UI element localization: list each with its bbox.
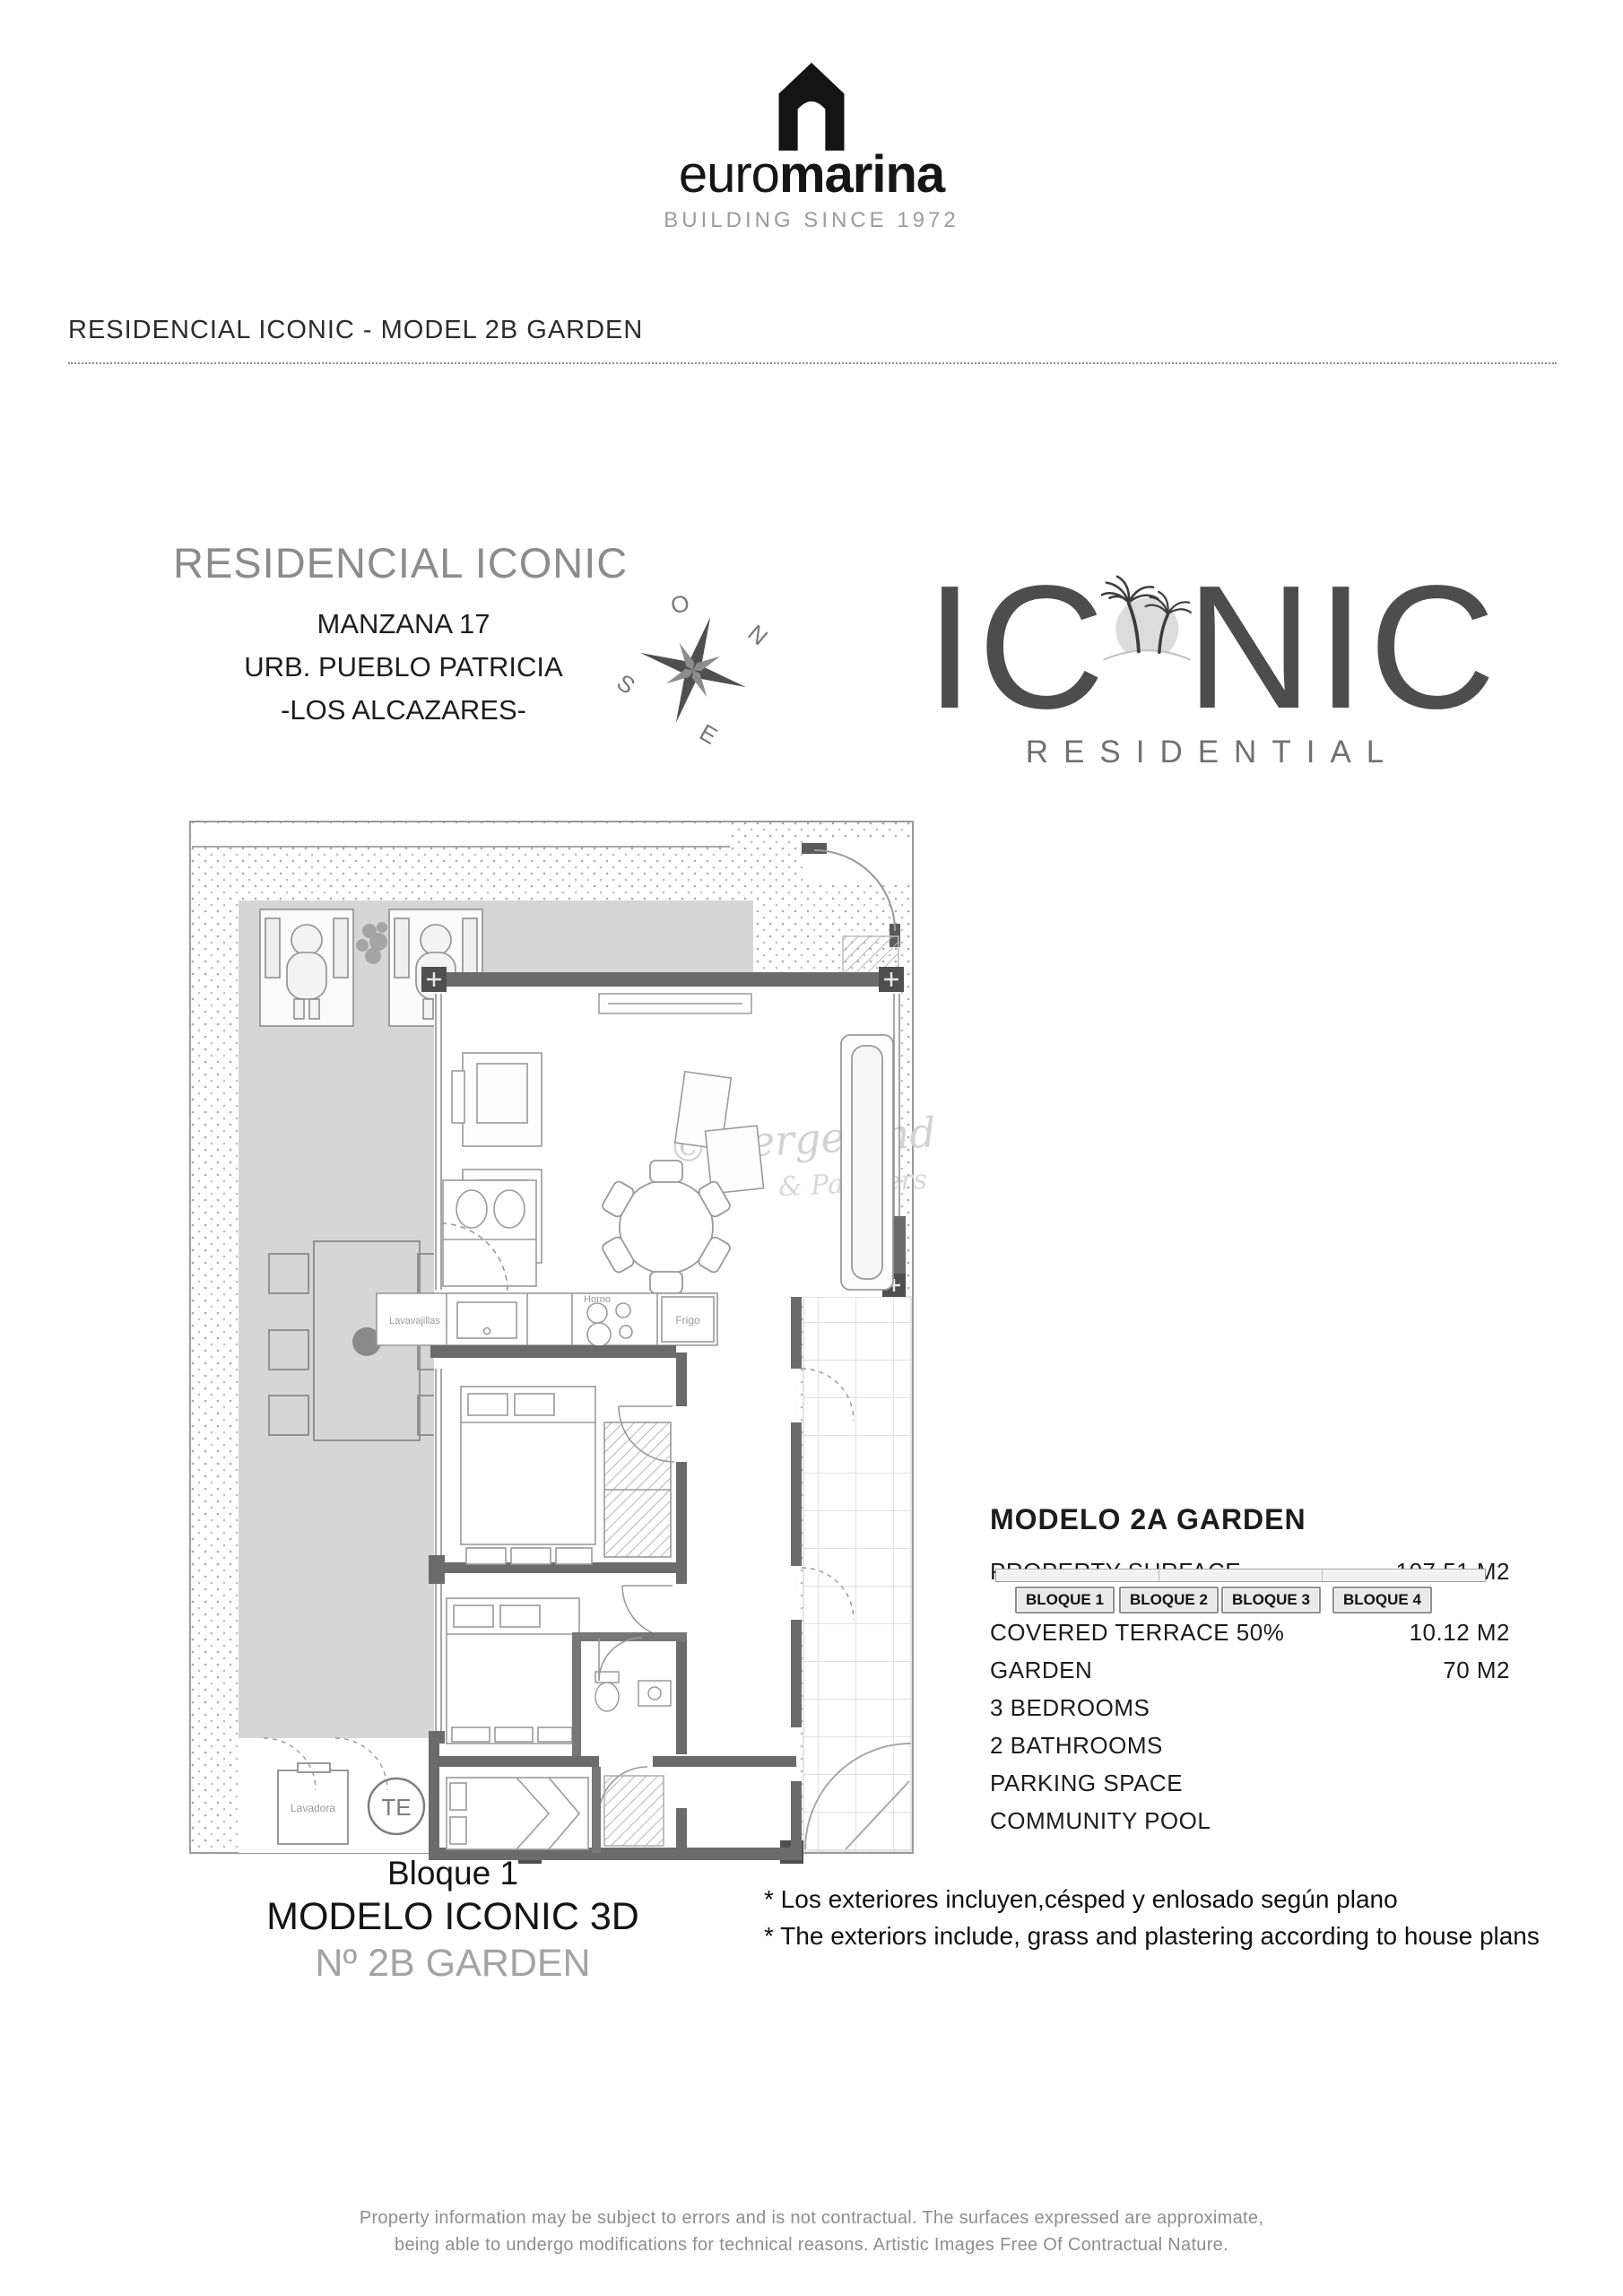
detail-row-bedrooms: 3 BEDROOMS	[990, 1696, 1510, 1719]
caption-bloque: Bloque 1	[215, 1855, 690, 1892]
viewer-slider[interactable]	[995, 1569, 1486, 1582]
armchair	[452, 1053, 542, 1146]
address-line-2: URB. PUEBLO PATRICIA	[170, 651, 637, 683]
detail-label: 3 BEDROOMS	[990, 1696, 1150, 1719]
sun-lounger	[260, 909, 353, 1026]
iconic-logo: IC	[925, 516, 1499, 770]
detail-row-parking: PARKING SPACE	[990, 1771, 1510, 1795]
compass-rose-icon: O N S E	[617, 585, 769, 751]
detail-row-property-surface: PROPERTY SURFACE 107.51 M2	[990, 1560, 1510, 1583]
detail-value: 10.12 M2	[1410, 1621, 1510, 1644]
brand-marina: marina	[779, 145, 944, 204]
footer-line-1: Property information may be subject to e…	[0, 2205, 1623, 2231]
detail-label: 2 BATHROOMS	[990, 1734, 1163, 1757]
detail-label: PARKING SPACE	[990, 1771, 1183, 1795]
brand-tagline: BUILDING SINCE 1972	[0, 208, 1623, 233]
legal-footer: Property information may be subject to e…	[0, 2205, 1623, 2258]
iconic-letters-right: NIC	[1185, 566, 1499, 729]
water-heater-label: TE	[381, 1794, 411, 1821]
bed	[447, 1598, 579, 1744]
brand-euro: euro	[679, 145, 779, 204]
bloque-button-row: BLOQUE 1 BLOQUE 2 BLOQUE 3 BLOQUE 4	[990, 1587, 1510, 1619]
bloque-4-button[interactable]: BLOQUE 4	[1332, 1587, 1432, 1613]
brand-wordmark: euromarina	[0, 149, 1623, 201]
brand-header: euromarina BUILDING SINCE 1972	[0, 54, 1623, 233]
bloque-1-button[interactable]: BLOQUE 1	[1015, 1587, 1115, 1613]
bed	[447, 1778, 588, 1849]
shower	[604, 1776, 664, 1846]
detail-label: COVERED TERRACE 50%	[990, 1621, 1284, 1644]
tv-console	[599, 994, 751, 1013]
sink-icon	[638, 1681, 671, 1706]
address-line-3: -LOS ALCAZARES-	[170, 694, 637, 726]
footnote-en: * The exteriors include, grass and plast…	[764, 1918, 1540, 1955]
fridge-label: Frigo	[675, 1314, 700, 1326]
compass-e-label: E	[695, 718, 722, 750]
compass-n-label: N	[742, 619, 769, 650]
bed	[461, 1387, 595, 1564]
caption-model: MODELO ICONIC 3D	[215, 1895, 690, 1939]
detail-row-bathrooms: 2 BATHROOMS	[990, 1734, 1510, 1757]
title-divider	[68, 362, 1557, 364]
bloque-2-button[interactable]: BLOQUE 2	[1119, 1587, 1219, 1613]
page-title: RESIDENCIAL ICONIC - MODEL 2B GARDEN	[68, 316, 643, 345]
caption-unit: Nº 2B GARDEN	[215, 1942, 690, 1986]
palm-sun-icon	[1101, 516, 1193, 729]
page: euromarina BUILDING SINCE 1972 RESIDENCI…	[0, 0, 1623, 2296]
floor-plan: © Wergeland & Partners	[178, 795, 962, 1864]
detail-label: GARDEN	[990, 1658, 1092, 1682]
kitchen-island	[443, 1180, 536, 1286]
footnotes: * Los exteriores incluyen,césped y enlos…	[764, 1882, 1540, 1954]
detail-value: 70 M2	[1443, 1658, 1510, 1682]
project-address: MANZANA 17 URB. PUEBLO PATRICIA -LOS ALC…	[170, 608, 637, 737]
sofa	[841, 1035, 893, 1290]
detail-row-garden: GARDEN 70 M2	[990, 1658, 1510, 1682]
compass-o-label: O	[668, 589, 692, 620]
address-line-1: MANZANA 17	[170, 608, 637, 640]
detail-row-pool: COMMUNITY POOL	[990, 1809, 1510, 1832]
house-icon	[768, 54, 855, 154]
washer-label: Lavadora	[291, 1802, 335, 1814]
detail-label: COMMUNITY POOL	[990, 1809, 1211, 1832]
details-panel: MODELO 2A GARDEN PROPERTY SURFACE 107.51…	[990, 1503, 1510, 1847]
dishwasher-label: Lavavajillas	[389, 1316, 440, 1326]
project-name: RESIDENCIAL ICONIC	[173, 538, 628, 587]
plan-caption: Bloque 1 MODELO ICONIC 3D Nº 2B GARDEN	[215, 1855, 690, 1986]
compass-s-label: S	[617, 668, 640, 700]
footnote-es: * Los exteriores incluyen,césped y enlos…	[764, 1882, 1540, 1918]
iconic-letters-left: IC	[925, 566, 1108, 729]
detail-row-covered-terrace: COVERED TERRACE 50% 10.12 M2	[990, 1621, 1510, 1644]
footer-line-2: being able to undergo modifications for …	[0, 2231, 1623, 2258]
bloque-3-button[interactable]: BLOQUE 3	[1221, 1587, 1321, 1613]
details-title: MODELO 2A GARDEN	[990, 1503, 1510, 1536]
oven-label: Horno	[584, 1294, 611, 1305]
